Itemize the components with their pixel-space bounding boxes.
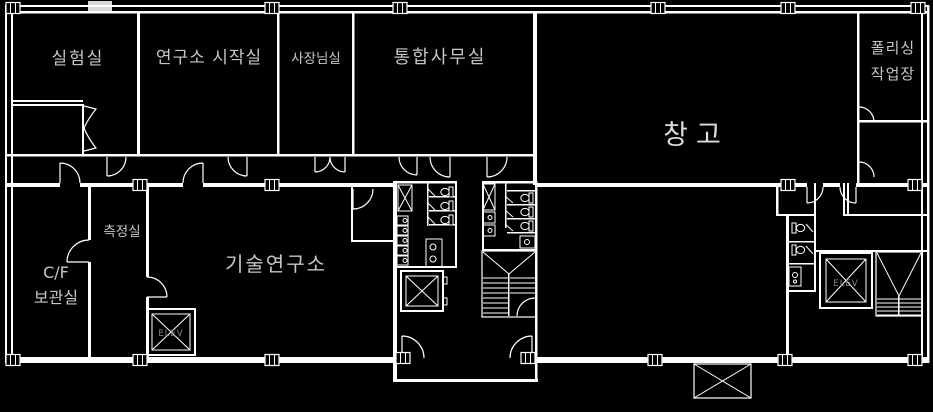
elevator-cross-icon [406, 276, 438, 306]
elevator-label: ELEV [833, 279, 858, 289]
cleaning-sink [520, 236, 535, 248]
room-label-warehouse: 창고 [663, 120, 729, 151]
stairs-right-core [876, 252, 922, 316]
stair-flight-lines [877, 253, 921, 296]
elevator-right-core: ELEV [820, 253, 872, 308]
toilet-block-left [397, 183, 455, 267]
floor-plan-svg: ELEV [0, 0, 933, 412]
toilet-icon [792, 245, 805, 255]
toilet-icon [521, 193, 533, 203]
double-swing-door-leaf [84, 128, 96, 151]
room-label-polishing-line2: 작업장 [871, 65, 915, 83]
room-label-integrated-office: 통합사무실 [394, 47, 487, 68]
interior-walls [5, 13, 929, 382]
elevator-left-wing: ELEV [147, 309, 195, 355]
toilet-icon [792, 223, 805, 233]
double-swing-door-leaf [84, 106, 96, 128]
toilet-block-right-core [788, 223, 816, 286]
stall-doors [806, 224, 813, 254]
room-label-research-start: 연구소 시작실 [156, 48, 262, 68]
room-label-tech-research: 기술연구소 [225, 252, 327, 276]
room-label-cf-line2: 보관실 [34, 288, 78, 307]
room-label-cf-line1: C/F [43, 263, 69, 282]
shaft-cross-icon [483, 184, 495, 210]
toilet-block-right [483, 183, 535, 248]
room-label-polishing-line1: 폴리싱 [871, 39, 915, 57]
stair-flight-lines [483, 252, 535, 274]
room-label-lab: 실험실 [52, 49, 105, 69]
room-label-president: 사장님실 [291, 51, 341, 67]
room-labels: 실험실 연구소 시작실 사장님실 통합사무실 창고 폴리싱 작업장 측정실 C/… [34, 39, 915, 307]
elevator-central [401, 271, 447, 311]
door-arcs [60, 106, 874, 358]
floor-plan-canvas: ELEV [0, 0, 933, 412]
toilet-icon [521, 207, 533, 217]
toilet-icon [521, 221, 533, 231]
toilet-icon [441, 201, 453, 211]
canopy-cross-icon [694, 364, 751, 398]
sink-stalls [483, 212, 495, 236]
sink-stalls [397, 216, 408, 265]
shaft-cross-icon [398, 185, 412, 211]
stairs-central [482, 251, 536, 317]
room-label-measurement: 측정실 [103, 224, 140, 240]
toilet-icon [441, 187, 453, 197]
urinal-unit [426, 239, 442, 267]
toilet-icon [441, 215, 453, 225]
elevator-label: ELEV [158, 329, 183, 339]
canopy-box [694, 364, 751, 398]
